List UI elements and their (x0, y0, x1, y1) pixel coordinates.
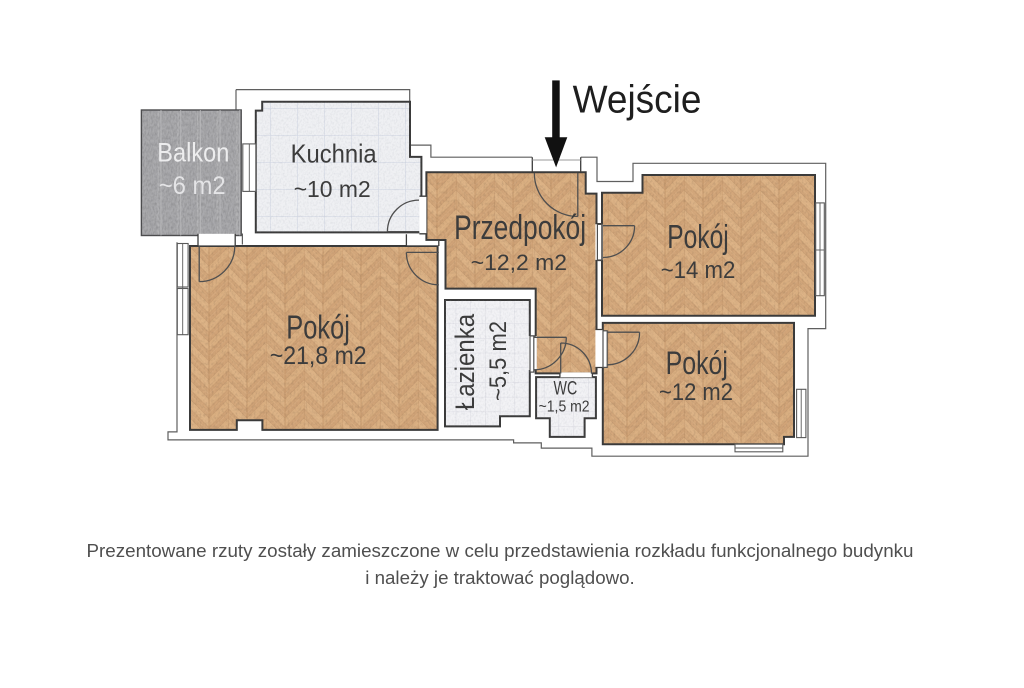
svg-text:i należy je traktować poglądow: i należy je traktować poglądowo. (365, 567, 635, 588)
svg-text:Pokój: Pokój (667, 218, 728, 255)
svg-text:~12,2 m2: ~12,2 m2 (471, 250, 567, 275)
svg-text:Pokój: Pokój (666, 345, 728, 381)
svg-text:Wejście: Wejście (573, 79, 702, 122)
svg-text:Prezentowane rzuty zostały zam: Prezentowane rzuty zostały zamieszczone … (87, 540, 914, 561)
svg-text:~1,5 m2: ~1,5 m2 (539, 399, 590, 416)
svg-text:Kuchnia: Kuchnia (291, 139, 377, 169)
svg-text:Przedpokój: Przedpokój (454, 209, 586, 247)
svg-text:WC: WC (554, 379, 578, 400)
svg-text:~12 m2: ~12 m2 (659, 379, 733, 406)
svg-text:Łazienka: Łazienka (450, 313, 480, 410)
svg-text:Balkon: Balkon (157, 138, 229, 168)
svg-text:~6 m2: ~6 m2 (159, 172, 226, 200)
svg-text:~14 m2: ~14 m2 (661, 257, 736, 284)
svg-text:~21,8 m2: ~21,8 m2 (270, 342, 367, 370)
svg-text:~5,5 m2: ~5,5 m2 (485, 321, 512, 401)
svg-text:Pokój: Pokój (286, 308, 350, 345)
svg-text:~10 m2: ~10 m2 (294, 176, 371, 202)
